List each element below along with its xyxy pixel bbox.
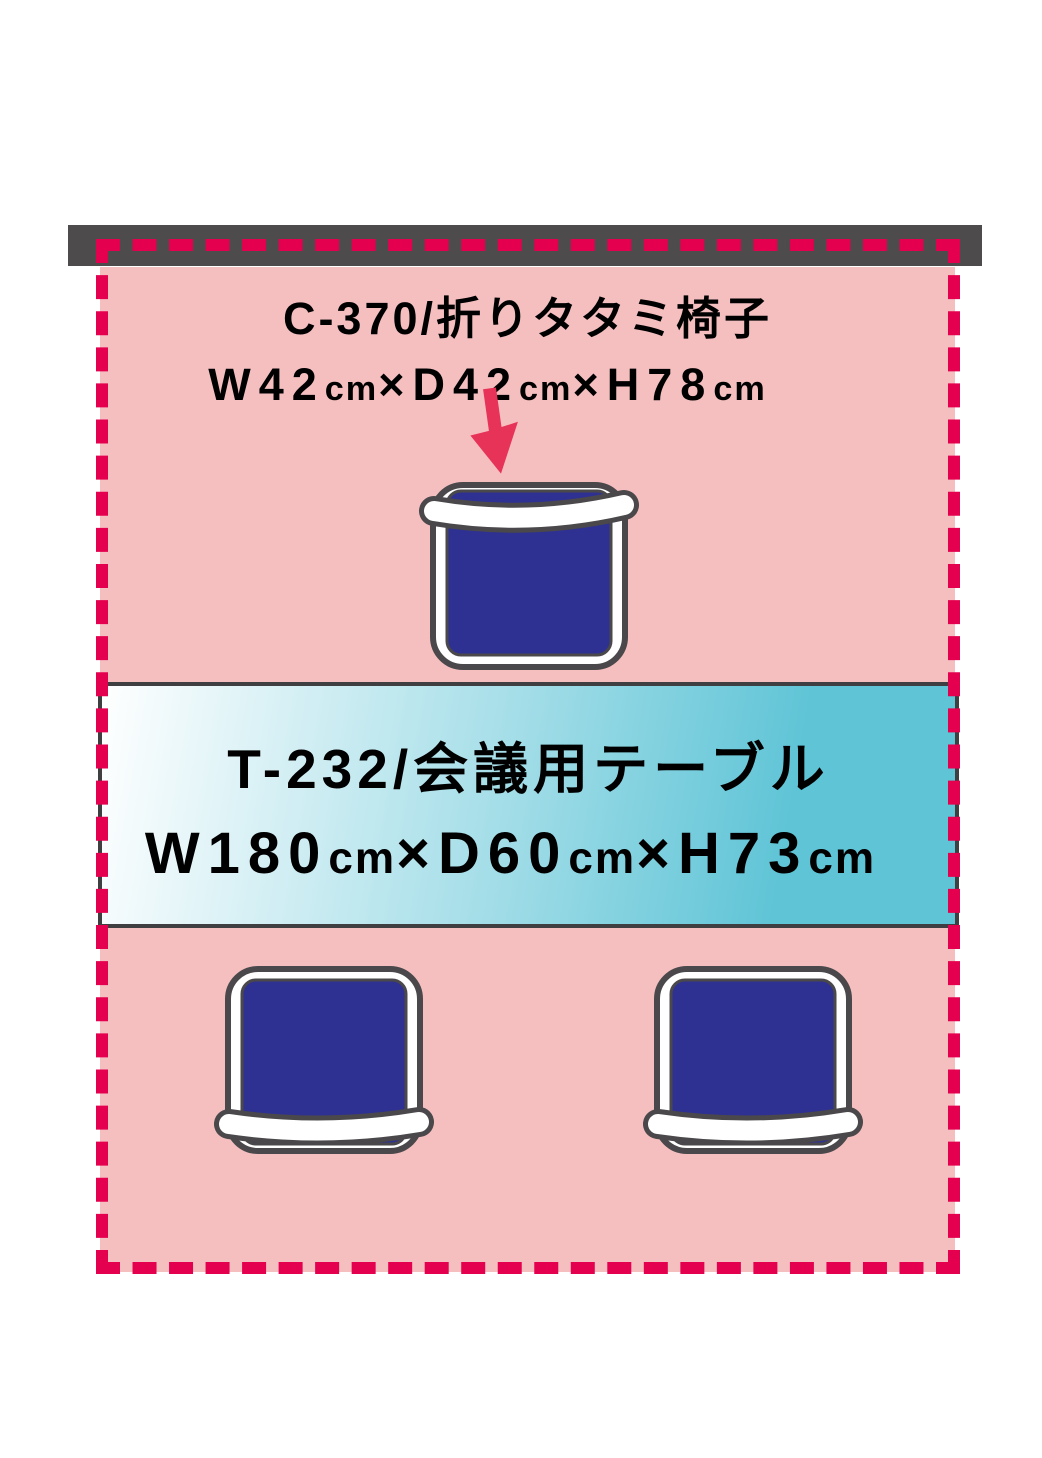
down-arrow-icon bbox=[455, 388, 535, 480]
chair-model-label: C-370/折りタタミ椅子 bbox=[100, 282, 955, 347]
chair-bottom-right bbox=[652, 962, 854, 1157]
chair-top bbox=[428, 478, 630, 673]
chair-bottom-left bbox=[223, 962, 425, 1157]
table-model-label: T-232/会議用テーブル bbox=[227, 724, 830, 804]
layout-diagram: C-370/折りタタミ椅子 W42cm×D42cm×H78cm T-232/会議… bbox=[0, 0, 1042, 1458]
table-dims-label: W180cm×D60cm×H73cm bbox=[145, 820, 876, 887]
meeting-table: T-232/会議用テーブル W180cm×D60cm×H73cm bbox=[98, 682, 959, 928]
wall-bar bbox=[68, 225, 982, 266]
